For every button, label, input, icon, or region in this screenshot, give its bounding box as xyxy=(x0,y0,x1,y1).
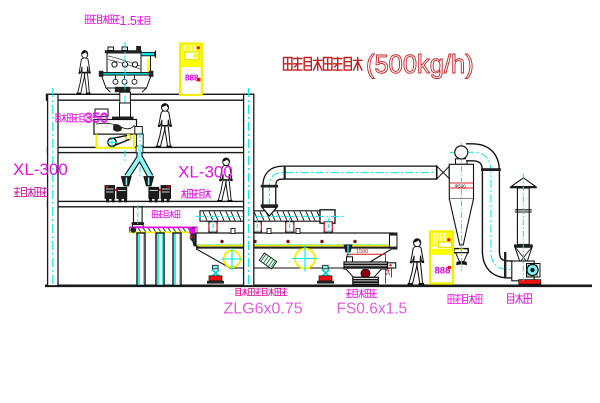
svg-text:Φ500: Φ500 xyxy=(455,184,467,189)
svg-text:XL-300: XL-300 xyxy=(13,160,68,179)
svg-text:FS0.6x1.5: FS0.6x1.5 xyxy=(337,301,408,318)
svg-text:350: 350 xyxy=(85,110,109,126)
svg-text:1.5: 1.5 xyxy=(120,14,137,28)
svg-text:1500: 1500 xyxy=(356,249,368,255)
svg-text:XL-300: XL-300 xyxy=(178,162,233,181)
svg-text:ZLG6x0.75: ZLG6x0.75 xyxy=(224,301,303,318)
svg-text:(500kg/h): (500kg/h) xyxy=(366,51,474,79)
